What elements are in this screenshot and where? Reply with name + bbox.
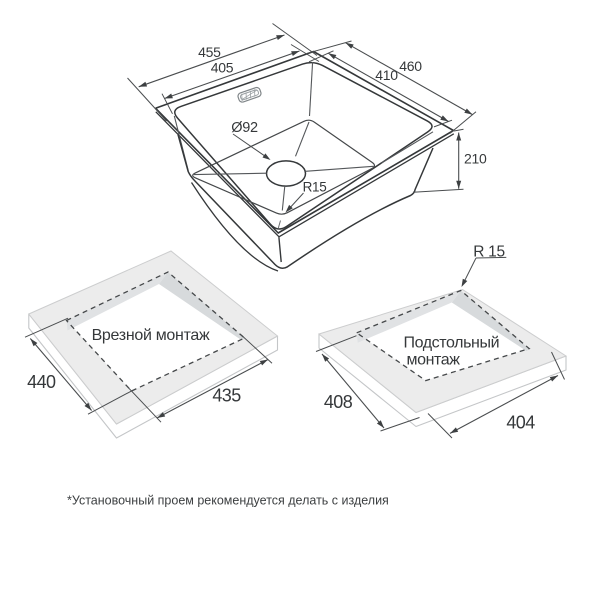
svg-text:440: 440 (27, 372, 56, 392)
svg-text:435: 435 (212, 386, 241, 406)
svg-text:410: 410 (375, 67, 398, 83)
svg-text:405: 405 (211, 60, 234, 76)
svg-text:*Установочный проем рекомендуе: *Установочный проем рекомендуется делать… (67, 494, 389, 508)
svg-text:R15: R15 (303, 180, 327, 195)
svg-text:Подстольный: Подстольный (404, 335, 500, 352)
svg-text:монтаж: монтаж (407, 352, 461, 369)
svg-text:210: 210 (464, 151, 487, 167)
svg-text:455: 455 (198, 44, 221, 60)
svg-text:Врезной монтаж: Врезной монтаж (92, 327, 210, 344)
svg-text:Ø92: Ø92 (231, 120, 258, 136)
svg-text:460: 460 (399, 58, 422, 74)
svg-text:404: 404 (506, 413, 535, 433)
svg-text:408: 408 (324, 392, 353, 412)
